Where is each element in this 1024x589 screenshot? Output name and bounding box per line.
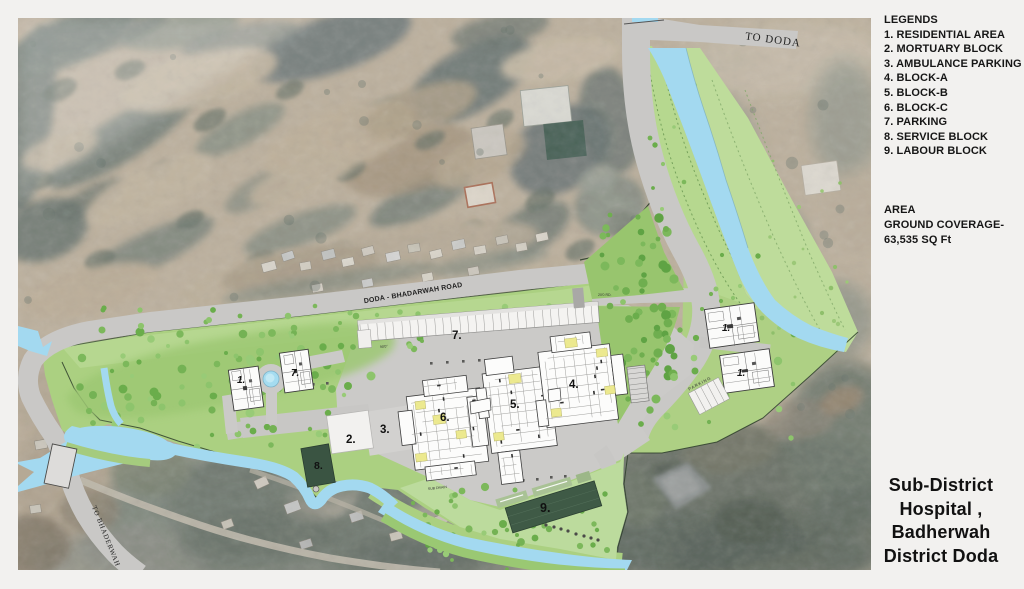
svg-text:2.: 2. <box>346 434 356 446</box>
svg-text:90'0": 90'0" <box>380 344 389 349</box>
svg-text:20'0 RD.: 20'0 RD. <box>598 293 612 297</box>
svg-text:8.: 8. <box>314 460 323 472</box>
svg-text:3.: 3. <box>380 424 390 436</box>
svg-text:5.: 5. <box>510 399 520 411</box>
svg-text:7.: 7. <box>452 330 462 342</box>
svg-text:9.: 9. <box>540 501 550 515</box>
svg-text:1.: 1. <box>237 375 245 386</box>
svg-text:7.: 7. <box>291 368 299 379</box>
svg-text:6.: 6. <box>440 412 450 424</box>
svg-text:1.: 1. <box>737 368 745 379</box>
svg-text:4.: 4. <box>569 379 579 391</box>
svg-text:1.: 1. <box>722 323 730 334</box>
